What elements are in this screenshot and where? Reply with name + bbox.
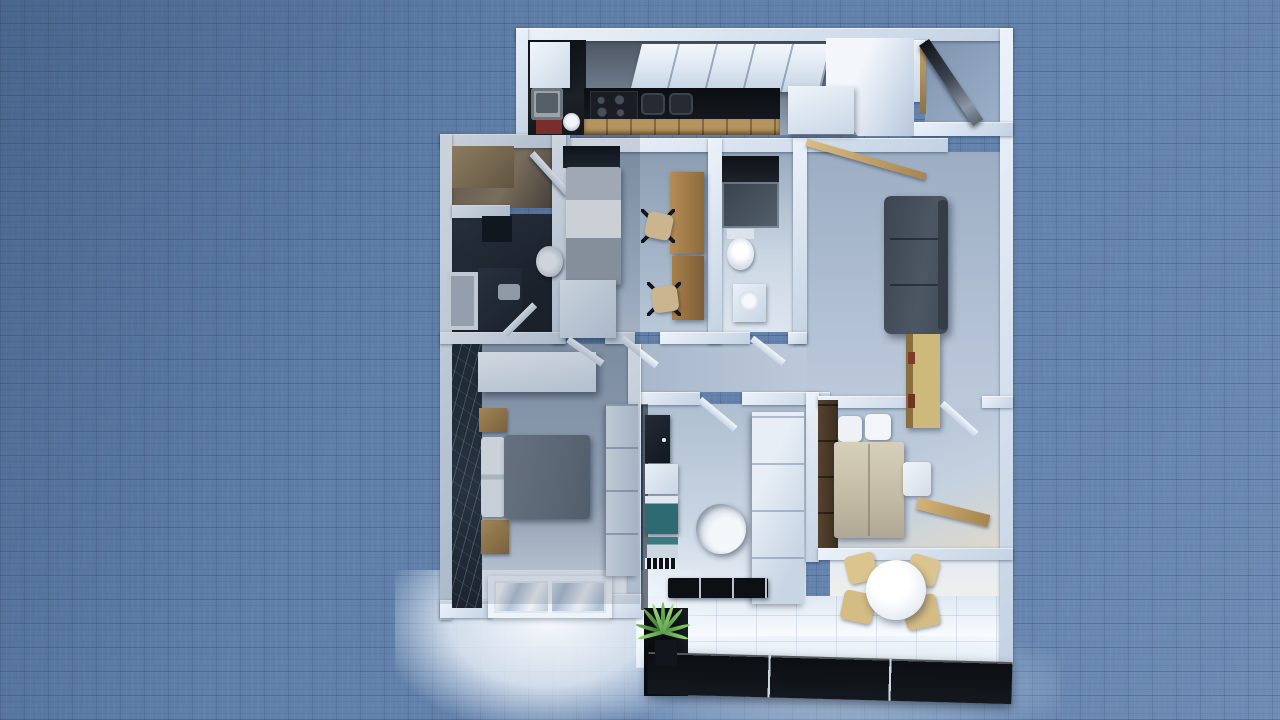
balcony-glazed-wall (647, 652, 1012, 704)
desk-chair-1-seat (644, 211, 675, 242)
master-bed-duvet (504, 435, 590, 519)
dining-table (866, 560, 926, 620)
bathroom1-toilet (536, 246, 563, 277)
bathroom3-storage-box (647, 537, 678, 559)
bathroom1-shower-tray (447, 272, 478, 330)
bedroom-window-mullion (548, 581, 552, 613)
wall-hall-north-d (788, 332, 807, 344)
sideboard-book-row-1 (908, 352, 915, 364)
desk-chair-2-seat (650, 284, 679, 313)
bathroom2-toilet (727, 238, 754, 270)
bedroom2-pillow-2 (865, 414, 891, 440)
bathroom2-shower (722, 182, 779, 228)
bedroom1-wardrobe (560, 280, 616, 338)
wall-outer-top (516, 28, 1013, 41)
wall-bed2-top-b (982, 396, 1013, 408)
bathroom2-cistern-shelf (722, 156, 779, 182)
bathroom3-vanity (645, 464, 678, 494)
master-wardrobe (606, 404, 638, 576)
sofa-cushion-seam-2 (890, 284, 942, 286)
kitchen-tall-cabinet-edge (920, 48, 926, 114)
kitchen-upper-cabinets (630, 44, 832, 92)
kitchen-hood-cabinet (530, 42, 570, 88)
bath-mat (668, 578, 768, 598)
bedroom2-bench (903, 462, 931, 496)
sofa-backrest (938, 200, 948, 330)
kitchen-cooktop (590, 91, 638, 121)
closet-shelving (452, 146, 514, 188)
bedroom1-headboard (563, 146, 620, 168)
bedroom1-single-bed (566, 167, 621, 285)
kitchen-sink-basin (536, 93, 558, 113)
kitchen-basin-right (669, 93, 693, 115)
kitchen-base-cabinets-wood (584, 119, 780, 135)
wall-kitchen-left (516, 28, 528, 140)
bathroom3-storage-column (752, 412, 804, 604)
wall-bed1-bath2 (708, 138, 722, 344)
wall-outer-left (440, 134, 452, 620)
master-bed-pillows (481, 437, 505, 517)
round-bathtub (696, 504, 746, 554)
bedroom2-pillow-1 (838, 416, 862, 442)
wall-hall-north-c (660, 332, 750, 344)
kitchen-red-drawer (536, 120, 562, 134)
kitchen-paper-roll (563, 113, 580, 131)
kitchen-basin-left (641, 93, 665, 115)
kitchen-peninsula-counter (788, 86, 854, 134)
wall-hall-north-a (440, 332, 565, 344)
master-nightstand-top (479, 408, 507, 432)
washing-machine (645, 496, 678, 534)
wall-leftwing-bottom-b (610, 594, 642, 618)
sofa-cushion-seam-1 (890, 238, 942, 240)
master-floating-shelf (478, 352, 596, 392)
plant-pot (655, 640, 677, 666)
sideboard-book-row-2 (908, 394, 915, 408)
bedroom1-desk (670, 172, 704, 254)
bathroom1-shower-column (482, 216, 512, 242)
floorplan-3d-viewport[interactable] (0, 0, 1280, 720)
sideboard-books (906, 334, 940, 428)
bathroom2-washbasin (739, 291, 759, 311)
bathroom1-washbasin (498, 284, 520, 300)
bedroom2-bed-seam (868, 444, 870, 536)
wall-bath2-living (793, 138, 807, 344)
wall-entry-bottom (912, 122, 1013, 136)
master-nightstand-bottom (481, 520, 509, 554)
bathroom3-mirror-knob (662, 438, 666, 442)
bathroom3-mirror-cabinet (645, 415, 670, 463)
bathroom3-radiator-grate (645, 558, 676, 569)
